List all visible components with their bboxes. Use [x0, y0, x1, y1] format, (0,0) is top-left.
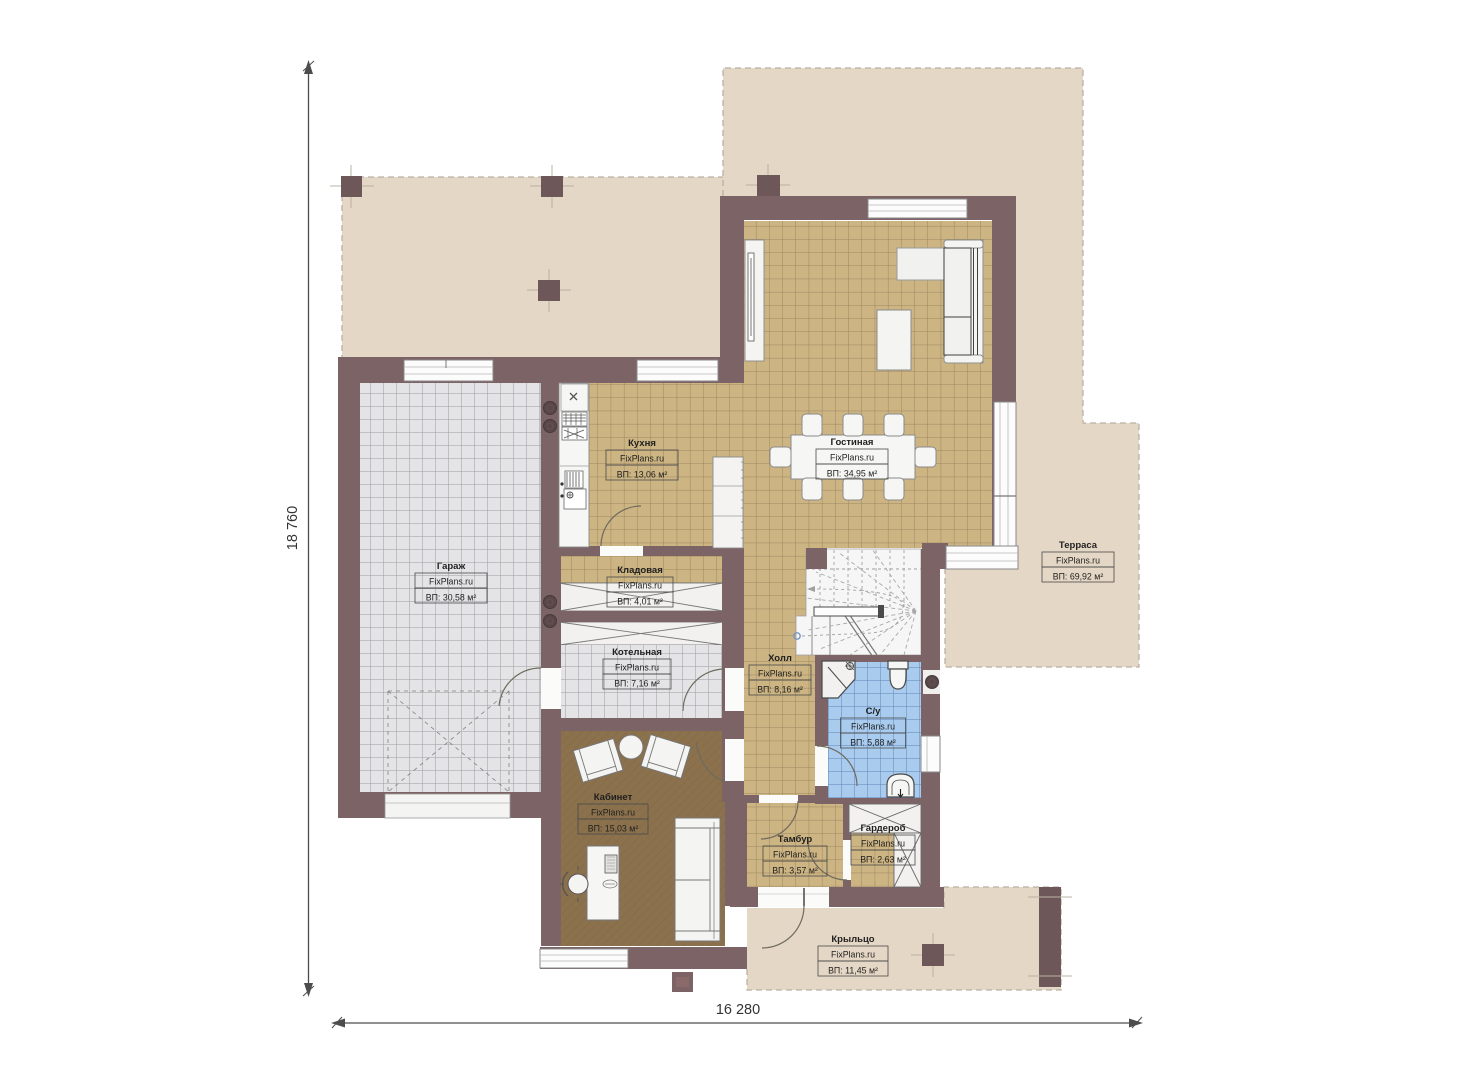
svg-text:Холл: Холл [768, 653, 792, 664]
svg-text:16 280: 16 280 [716, 1002, 760, 1018]
svg-text:FixPlans.ru: FixPlans.ru [758, 669, 802, 679]
svg-text:ВП: 34,95 м²: ВП: 34,95 м² [827, 469, 878, 479]
svg-text:FixPlans.ru: FixPlans.ru [591, 808, 635, 818]
svg-text:FixPlans.ru: FixPlans.ru [773, 850, 817, 860]
svg-text:ВП: 8,16 м²: ВП: 8,16 м² [757, 685, 803, 695]
svg-text:FixPlans.ru: FixPlans.ru [618, 581, 662, 591]
svg-text:ВП: 69,92 м²: ВП: 69,92 м² [1053, 572, 1104, 582]
svg-text:ВП: 13,06 м²: ВП: 13,06 м² [617, 470, 668, 480]
svg-text:ВП: 30,58 м²: ВП: 30,58 м² [426, 593, 477, 603]
svg-text:Кабинет: Кабинет [594, 792, 633, 803]
svg-text:FixPlans.ru: FixPlans.ru [620, 454, 664, 464]
svg-text:Гараж: Гараж [437, 561, 466, 572]
svg-text:18 760: 18 760 [285, 506, 301, 550]
svg-text:ВП: 4,01 м²: ВП: 4,01 м² [617, 597, 663, 607]
svg-text:FixPlans.ru: FixPlans.ru [831, 950, 875, 960]
svg-text:Котельная: Котельная [612, 647, 662, 658]
svg-text:Крыльцо: Крыльцо [831, 934, 874, 945]
svg-text:ВП: 5,88 м²: ВП: 5,88 м² [850, 738, 896, 748]
svg-text:Терраса: Терраса [1059, 540, 1098, 551]
svg-text:ВП: 11,45 м²: ВП: 11,45 м² [828, 966, 878, 976]
svg-text:Кухня: Кухня [628, 438, 656, 449]
svg-text:Тамбур: Тамбур [778, 834, 813, 845]
svg-text:ВП: 3,57 м²: ВП: 3,57 м² [772, 866, 818, 876]
svg-text:С/у: С/у [866, 706, 882, 717]
svg-text:FixPlans.ru: FixPlans.ru [851, 722, 895, 732]
svg-text:FixPlans.ru: FixPlans.ru [615, 663, 659, 673]
svg-text:Кладовая: Кладовая [617, 565, 663, 576]
svg-text:FixPlans.ru: FixPlans.ru [861, 839, 905, 849]
svg-text:ВП: 15,03 м²: ВП: 15,03 м² [588, 824, 639, 834]
svg-text:Гардероб: Гардероб [861, 823, 906, 834]
svg-text:ВП: 7,16 м²: ВП: 7,16 м² [614, 679, 660, 689]
svg-text:ВП: 2,63 м²: ВП: 2,63 м² [860, 855, 906, 865]
svg-text:FixPlans.ru: FixPlans.ru [1056, 556, 1100, 566]
svg-text:FixPlans.ru: FixPlans.ru [429, 577, 473, 587]
svg-text:FixPlans.ru: FixPlans.ru [830, 453, 874, 463]
svg-text:Гостиная: Гостиная [831, 437, 874, 448]
